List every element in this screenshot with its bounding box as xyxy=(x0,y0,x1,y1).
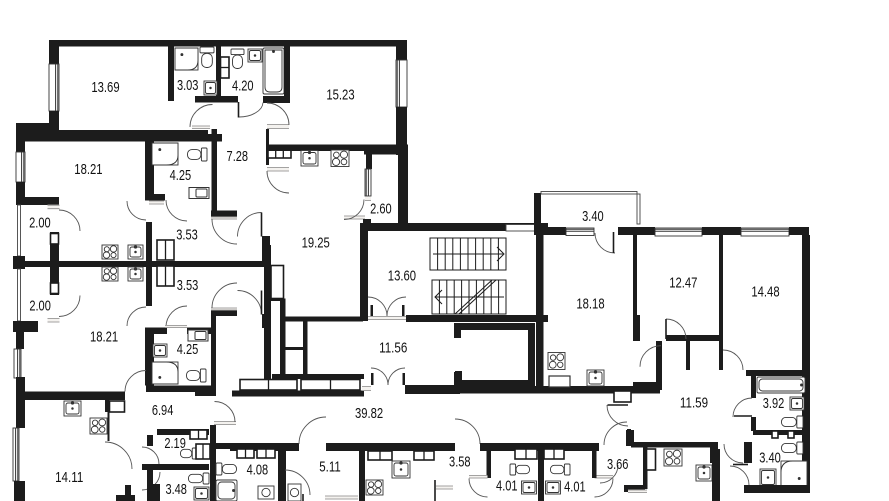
svg-text:18.18: 18.18 xyxy=(576,297,604,313)
svg-text:4.20: 4.20 xyxy=(232,78,254,94)
svg-text:2.60: 2.60 xyxy=(370,202,392,218)
svg-text:18.21: 18.21 xyxy=(74,162,102,178)
svg-text:3.40: 3.40 xyxy=(582,209,604,225)
svg-text:4.01: 4.01 xyxy=(564,480,586,496)
svg-text:7.28: 7.28 xyxy=(227,149,249,165)
svg-text:3.66: 3.66 xyxy=(607,457,629,473)
svg-text:13.69: 13.69 xyxy=(91,80,119,96)
svg-text:5.11: 5.11 xyxy=(319,460,341,476)
svg-text:14.48: 14.48 xyxy=(751,284,779,300)
svg-text:3.53: 3.53 xyxy=(176,228,198,244)
svg-text:4.25: 4.25 xyxy=(170,168,192,184)
svg-text:14.11: 14.11 xyxy=(55,470,83,486)
svg-text:4.01: 4.01 xyxy=(496,479,518,495)
svg-text:2.00: 2.00 xyxy=(29,299,51,315)
svg-text:39.82: 39.82 xyxy=(355,406,383,422)
svg-text:19.25: 19.25 xyxy=(302,236,330,252)
svg-text:18.21: 18.21 xyxy=(90,330,118,346)
svg-text:3.58: 3.58 xyxy=(449,455,471,471)
svg-text:11.56: 11.56 xyxy=(379,340,407,356)
svg-text:15.23: 15.23 xyxy=(326,88,354,104)
svg-text:3.40: 3.40 xyxy=(759,451,781,467)
svg-text:3.53: 3.53 xyxy=(177,278,199,294)
svg-text:11.59: 11.59 xyxy=(680,396,708,412)
svg-text:3.48: 3.48 xyxy=(165,482,187,498)
svg-text:4.08: 4.08 xyxy=(247,462,269,478)
svg-text:12.47: 12.47 xyxy=(669,276,697,292)
svg-text:2.00: 2.00 xyxy=(29,215,51,231)
svg-text:2.19: 2.19 xyxy=(164,436,186,452)
svg-text:6.94: 6.94 xyxy=(152,403,174,419)
svg-text:13.60: 13.60 xyxy=(388,269,416,285)
svg-text:4.25: 4.25 xyxy=(177,342,199,358)
svg-text:3.03: 3.03 xyxy=(177,78,199,94)
svg-text:3.92: 3.92 xyxy=(763,396,785,412)
